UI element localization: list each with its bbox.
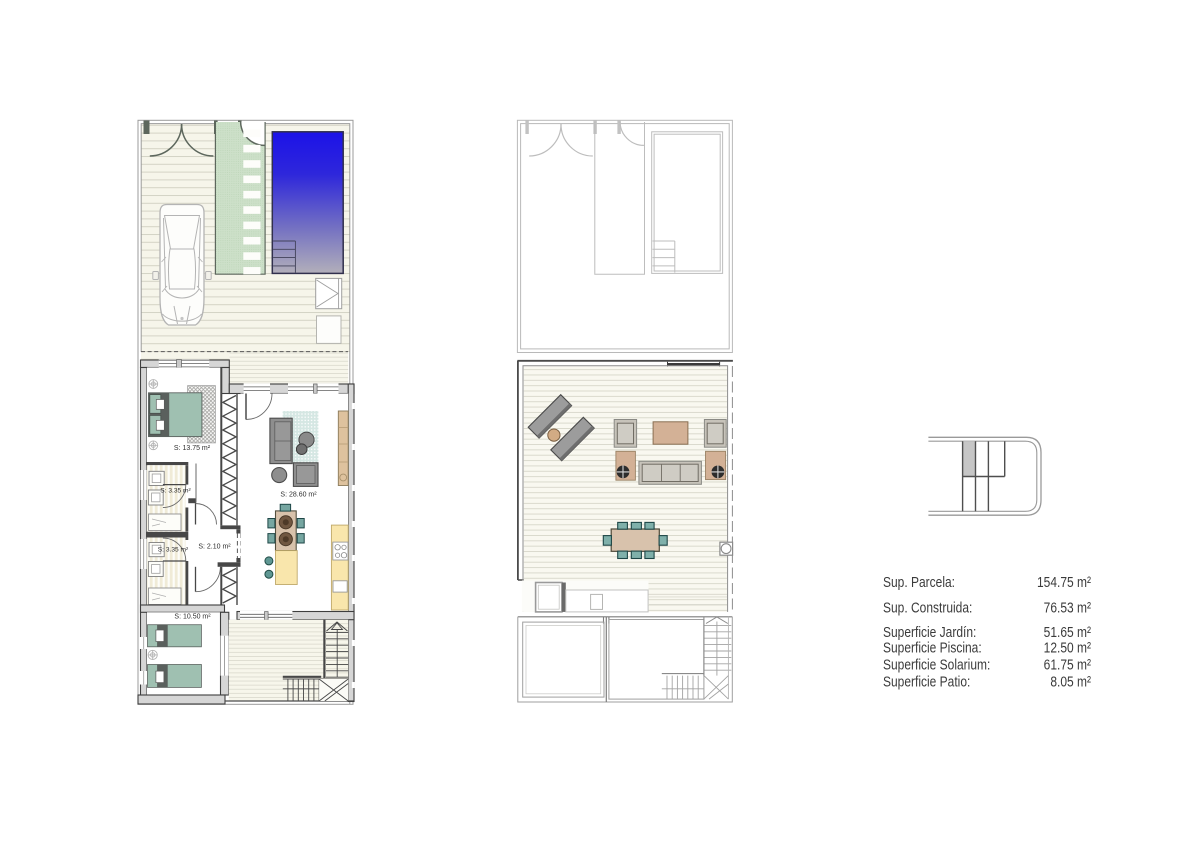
- svg-text:Superficie Patio:: Superficie Patio:: [883, 673, 970, 690]
- svg-text:Superficie Piscina:: Superficie Piscina:: [883, 639, 982, 656]
- svg-text:12.50 m²: 12.50 m²: [1044, 639, 1092, 656]
- svg-text:51.65 m²: 51.65 m²: [1044, 624, 1092, 641]
- svg-text:S: 3.35 m²: S: 3.35 m²: [160, 488, 191, 495]
- svg-text:S: 3.35 m²: S: 3.35 m²: [158, 547, 189, 554]
- svg-text:76.53 m²: 76.53 m²: [1044, 599, 1092, 616]
- svg-text:S: 28.60 m²: S: 28.60 m²: [280, 492, 317, 499]
- svg-text:154.75 m²: 154.75 m²: [1037, 574, 1091, 591]
- svg-text:Superficie Jardín:: Superficie Jardín:: [883, 624, 976, 641]
- svg-text:Superficie Solarium:: Superficie Solarium:: [883, 656, 990, 673]
- svg-text:S: 2.10 m²: S: 2.10 m²: [198, 544, 231, 551]
- svg-text:8.05 m²: 8.05 m²: [1050, 673, 1091, 690]
- svg-text:Sup. Parcela:: Sup. Parcela:: [883, 574, 955, 591]
- svg-text:Sup. Construida:: Sup. Construida:: [883, 599, 972, 616]
- svg-text:S: 10.50 m²: S: 10.50 m²: [174, 614, 211, 621]
- svg-text:S: 13.75 m²: S: 13.75 m²: [174, 445, 211, 452]
- svg-text:61.75 m²: 61.75 m²: [1044, 656, 1092, 673]
